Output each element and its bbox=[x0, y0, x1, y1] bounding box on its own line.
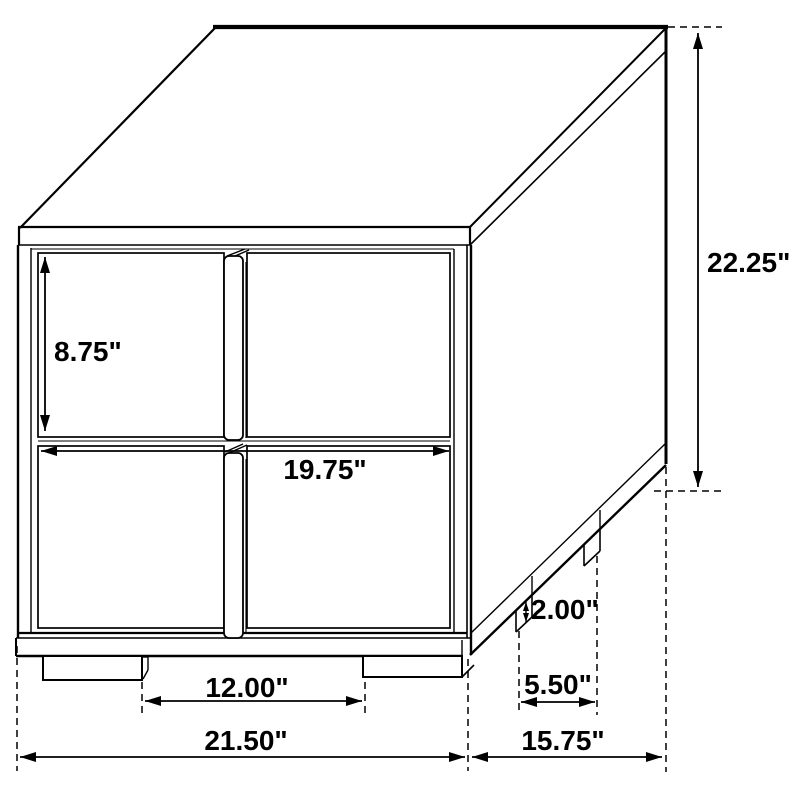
front-leg-left bbox=[43, 656, 142, 680]
drawer-handles bbox=[224, 249, 249, 638]
drawer-handle-lower bbox=[224, 453, 243, 638]
dim-front-leg-spacing: 12.00" bbox=[142, 672, 365, 713]
dim-label-front-leg-spacing: 12.00" bbox=[205, 672, 288, 703]
drawer-panel-lower-left bbox=[38, 446, 224, 628]
dim-label-leg-height: 2.00" bbox=[531, 594, 599, 625]
drawer-handle-upper bbox=[224, 256, 243, 440]
nightstand-dimension-drawing: 8.75" 19.75" 22.25" 2.00" 5.50" 12.00" 2… bbox=[0, 0, 800, 800]
dim-label-overall-depth: 15.75" bbox=[521, 725, 604, 756]
dim-label-drawer-front-height: 8.75" bbox=[54, 336, 122, 367]
dim-label-drawer-width: 19.75" bbox=[283, 454, 366, 485]
drawer-panel-upper-right bbox=[247, 253, 450, 437]
dim-leg-height: 2.00" bbox=[526, 594, 599, 625]
diagram-canvas: 8.75" 19.75" 22.25" 2.00" 5.50" 12.00" 2… bbox=[0, 0, 800, 800]
front-leg-right bbox=[363, 656, 462, 677]
dim-side-leg-spacing: 5.50" bbox=[519, 556, 597, 715]
dim-label-overall-height: 22.25" bbox=[707, 247, 790, 278]
base-plinth bbox=[16, 638, 462, 656]
dim-overall-height: 22.25" bbox=[654, 27, 790, 491]
dim-label-side-leg-spacing: 5.50" bbox=[524, 669, 592, 700]
dim-label-overall-width: 21.50" bbox=[204, 725, 287, 756]
